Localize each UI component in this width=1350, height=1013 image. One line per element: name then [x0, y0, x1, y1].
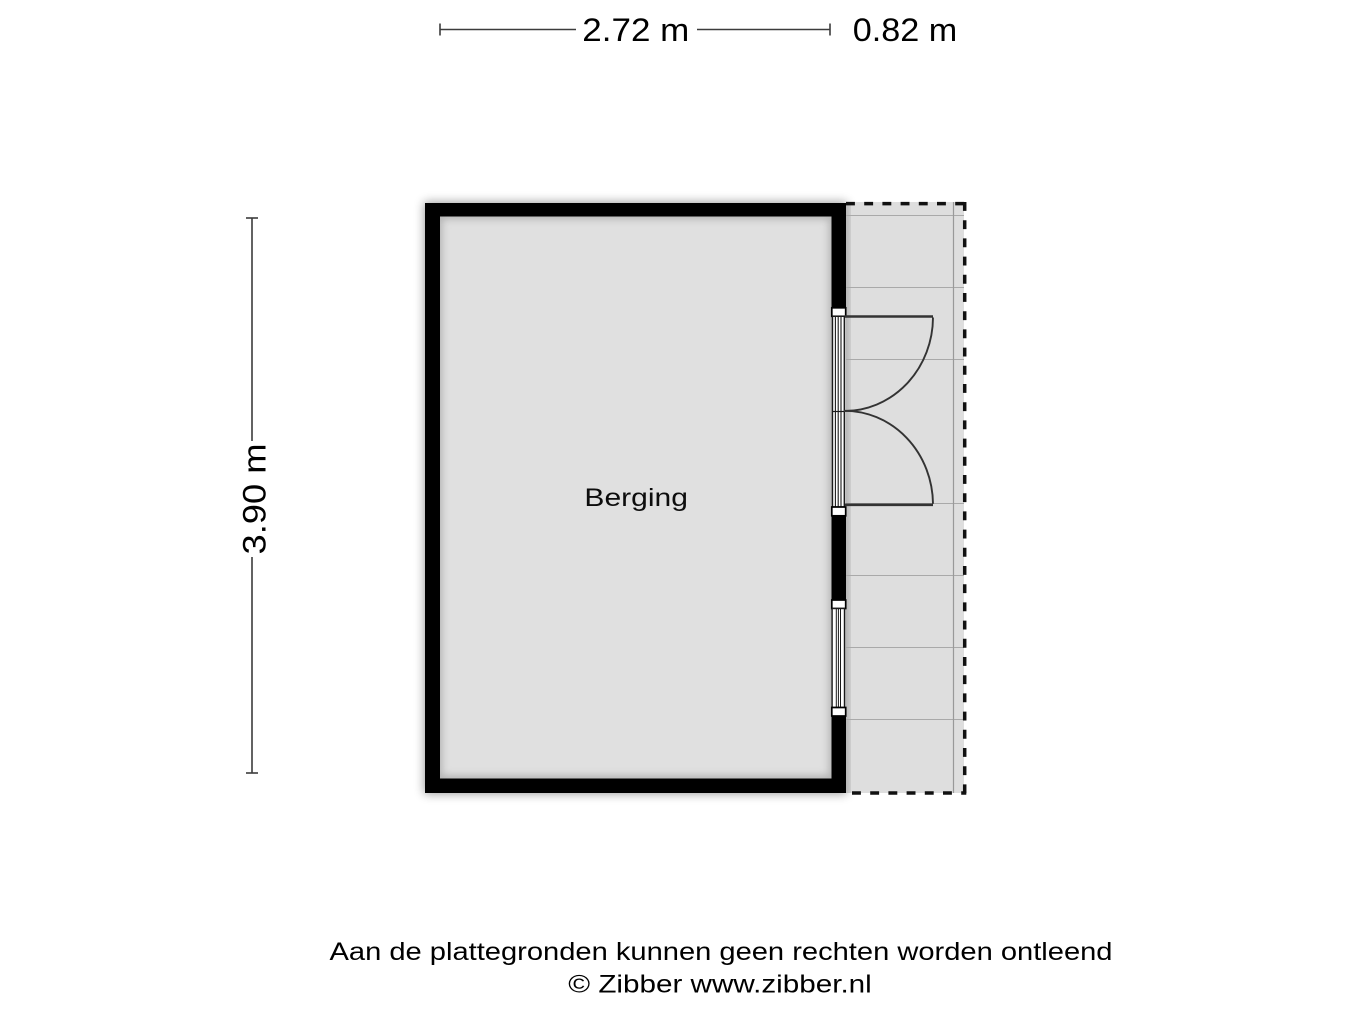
- svg-text:0.82 m: 0.82 m: [853, 12, 958, 48]
- svg-text:Berging: Berging: [584, 484, 688, 512]
- svg-text:© Zibber www.zibber.nl: © Zibber www.zibber.nl: [568, 971, 872, 999]
- svg-text:Aan de plattegronden kunnen ge: Aan de plattegronden kunnen geen rechten…: [330, 938, 1113, 966]
- svg-text:2.72 m: 2.72 m: [582, 12, 689, 48]
- svg-text:3.90 m: 3.90 m: [237, 444, 273, 555]
